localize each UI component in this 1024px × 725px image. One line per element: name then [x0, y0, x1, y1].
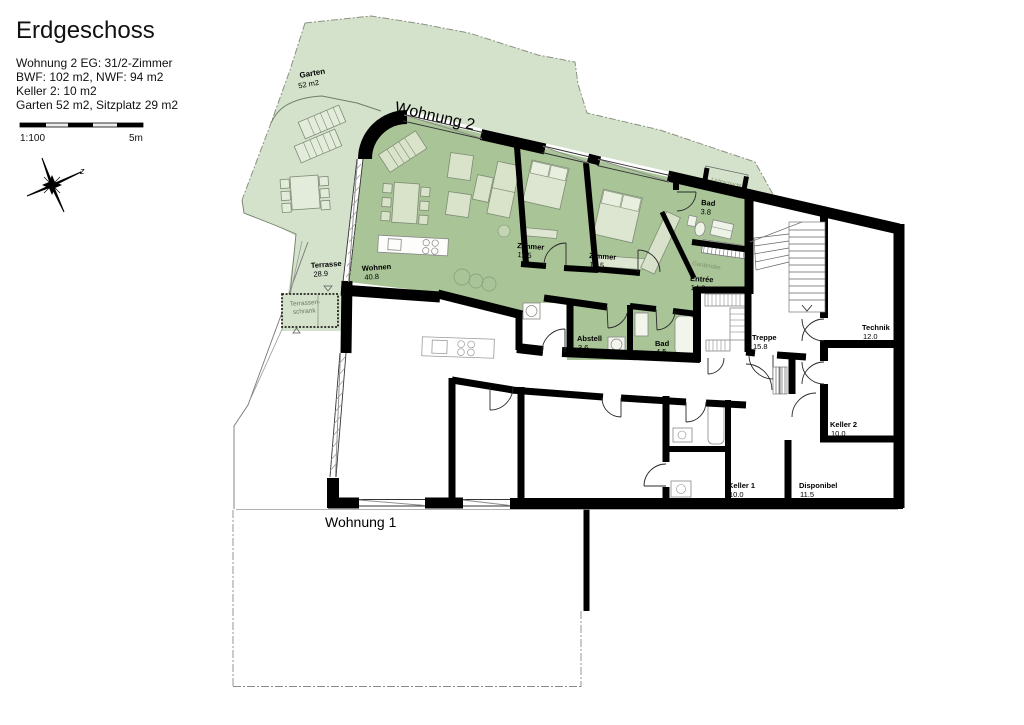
svg-text:Keller 2: Keller 2 [830, 420, 857, 429]
svg-text:28.9: 28.9 [313, 269, 328, 279]
svg-text:3.8: 3.8 [700, 207, 711, 217]
svg-text:Wohnung 2 EG: 31/2-Zimmer: Wohnung 2 EG: 31/2-Zimmer [16, 56, 173, 70]
svg-text:Keller 1: Keller 1 [728, 481, 755, 490]
svg-text:5m: 5m [129, 133, 143, 144]
svg-text:11.5: 11.5 [517, 250, 532, 260]
svg-text:3.6: 3.6 [578, 343, 588, 352]
svg-text:4.5: 4.5 [656, 347, 666, 356]
svg-text:10.0: 10.0 [831, 429, 846, 438]
svg-text:Erdgeschoss: Erdgeschoss [16, 17, 155, 44]
svg-text:15.5: 15.5 [589, 260, 604, 270]
svg-text:15.8: 15.8 [753, 342, 768, 351]
svg-text:Disponibel: Disponibel [799, 481, 837, 490]
svg-text:Abstell: Abstell [577, 334, 602, 343]
svg-text:Treppe: Treppe [752, 333, 777, 342]
svg-text:1:100: 1:100 [20, 133, 45, 144]
svg-text:12.0: 12.0 [863, 332, 878, 341]
svg-text:14.8: 14.8 [690, 283, 705, 293]
svg-text:Technik: Technik [862, 323, 891, 332]
svg-text:40.8: 40.8 [364, 272, 379, 282]
svg-text:Keller 2: 10 m2: Keller 2: 10 m2 [16, 84, 97, 98]
svg-text:11.5: 11.5 [800, 490, 814, 499]
svg-text:Garten 52 m2, Sitzplatz 29 m2: Garten 52 m2, Sitzplatz 29 m2 [16, 98, 178, 112]
svg-text:z: z [79, 166, 85, 176]
svg-text:Wohnung 1: Wohnung 1 [325, 514, 397, 530]
svg-text:BWF: 102 m2, NWF: 94 m2: BWF: 102 m2, NWF: 94 m2 [16, 70, 164, 84]
svg-text:10.0: 10.0 [729, 490, 744, 499]
